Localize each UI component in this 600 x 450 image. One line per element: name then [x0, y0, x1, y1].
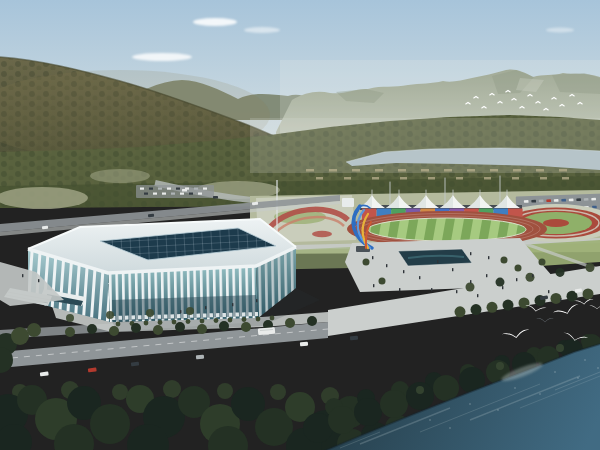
- track-infield: [368, 218, 526, 241]
- stadium: [0, 219, 320, 332]
- rendering-canvas: [0, 0, 600, 450]
- scene-svg: [0, 0, 600, 450]
